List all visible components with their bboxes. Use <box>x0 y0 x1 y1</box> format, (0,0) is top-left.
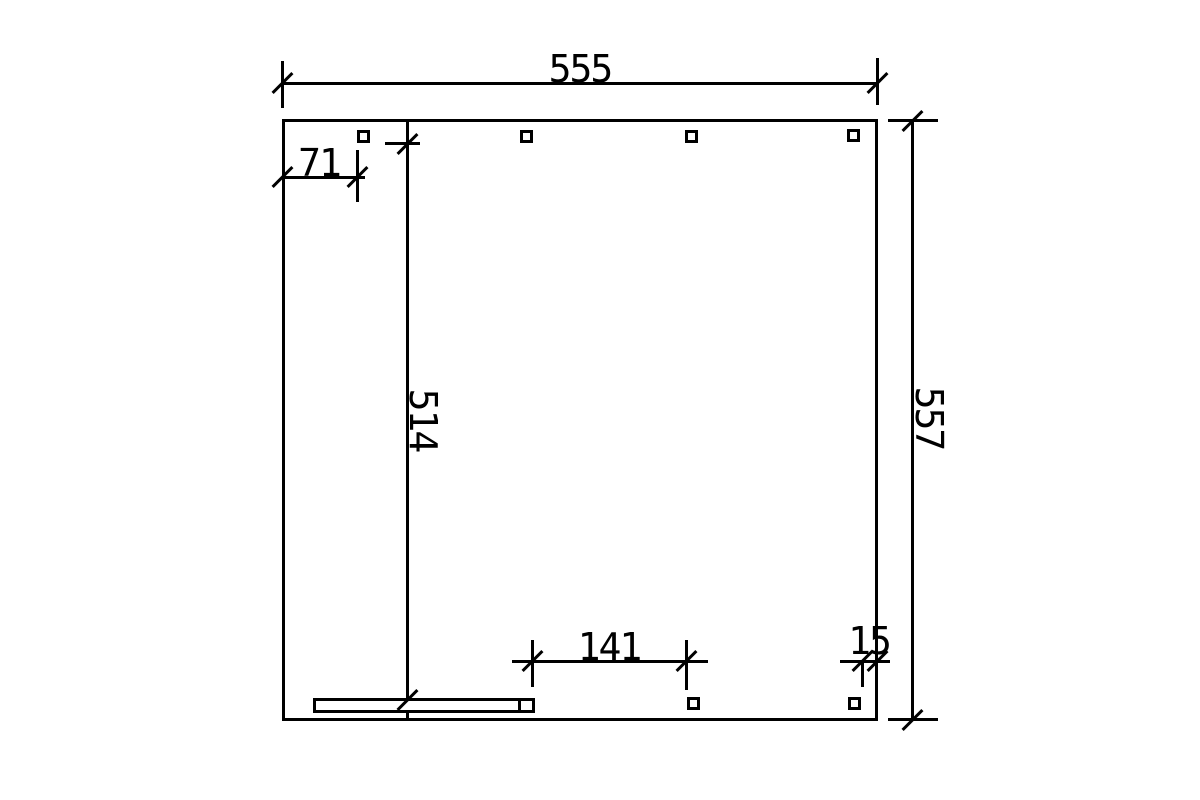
post-marker-top-1 <box>357 130 370 143</box>
post-marker-top-2 <box>520 130 533 143</box>
beam-outline <box>313 698 535 713</box>
post-marker-top-3 <box>685 130 698 143</box>
extension-line-right <box>685 640 688 690</box>
beam-end-divider-line <box>518 698 521 713</box>
post-marker-top-4 <box>847 129 860 142</box>
dim-label-inner-depth: 514 <box>404 389 442 452</box>
dim-label-bottom-span: 141 <box>578 628 641 666</box>
dim-label-bottom-right-offset: 15 <box>848 622 890 660</box>
post-marker-bottom-1 <box>687 697 700 710</box>
floor-plan-canvas: 555 557 71 514 141 15 <box>0 0 1200 800</box>
dim-label-right-depth: 557 <box>910 387 948 450</box>
post-marker-bottom-2 <box>848 697 861 710</box>
extension-stub-top <box>385 142 420 145</box>
extension-line-left <box>861 663 864 687</box>
dim-label-top-width: 555 <box>549 50 612 88</box>
dim-label-left-offset: 71 <box>298 144 340 182</box>
